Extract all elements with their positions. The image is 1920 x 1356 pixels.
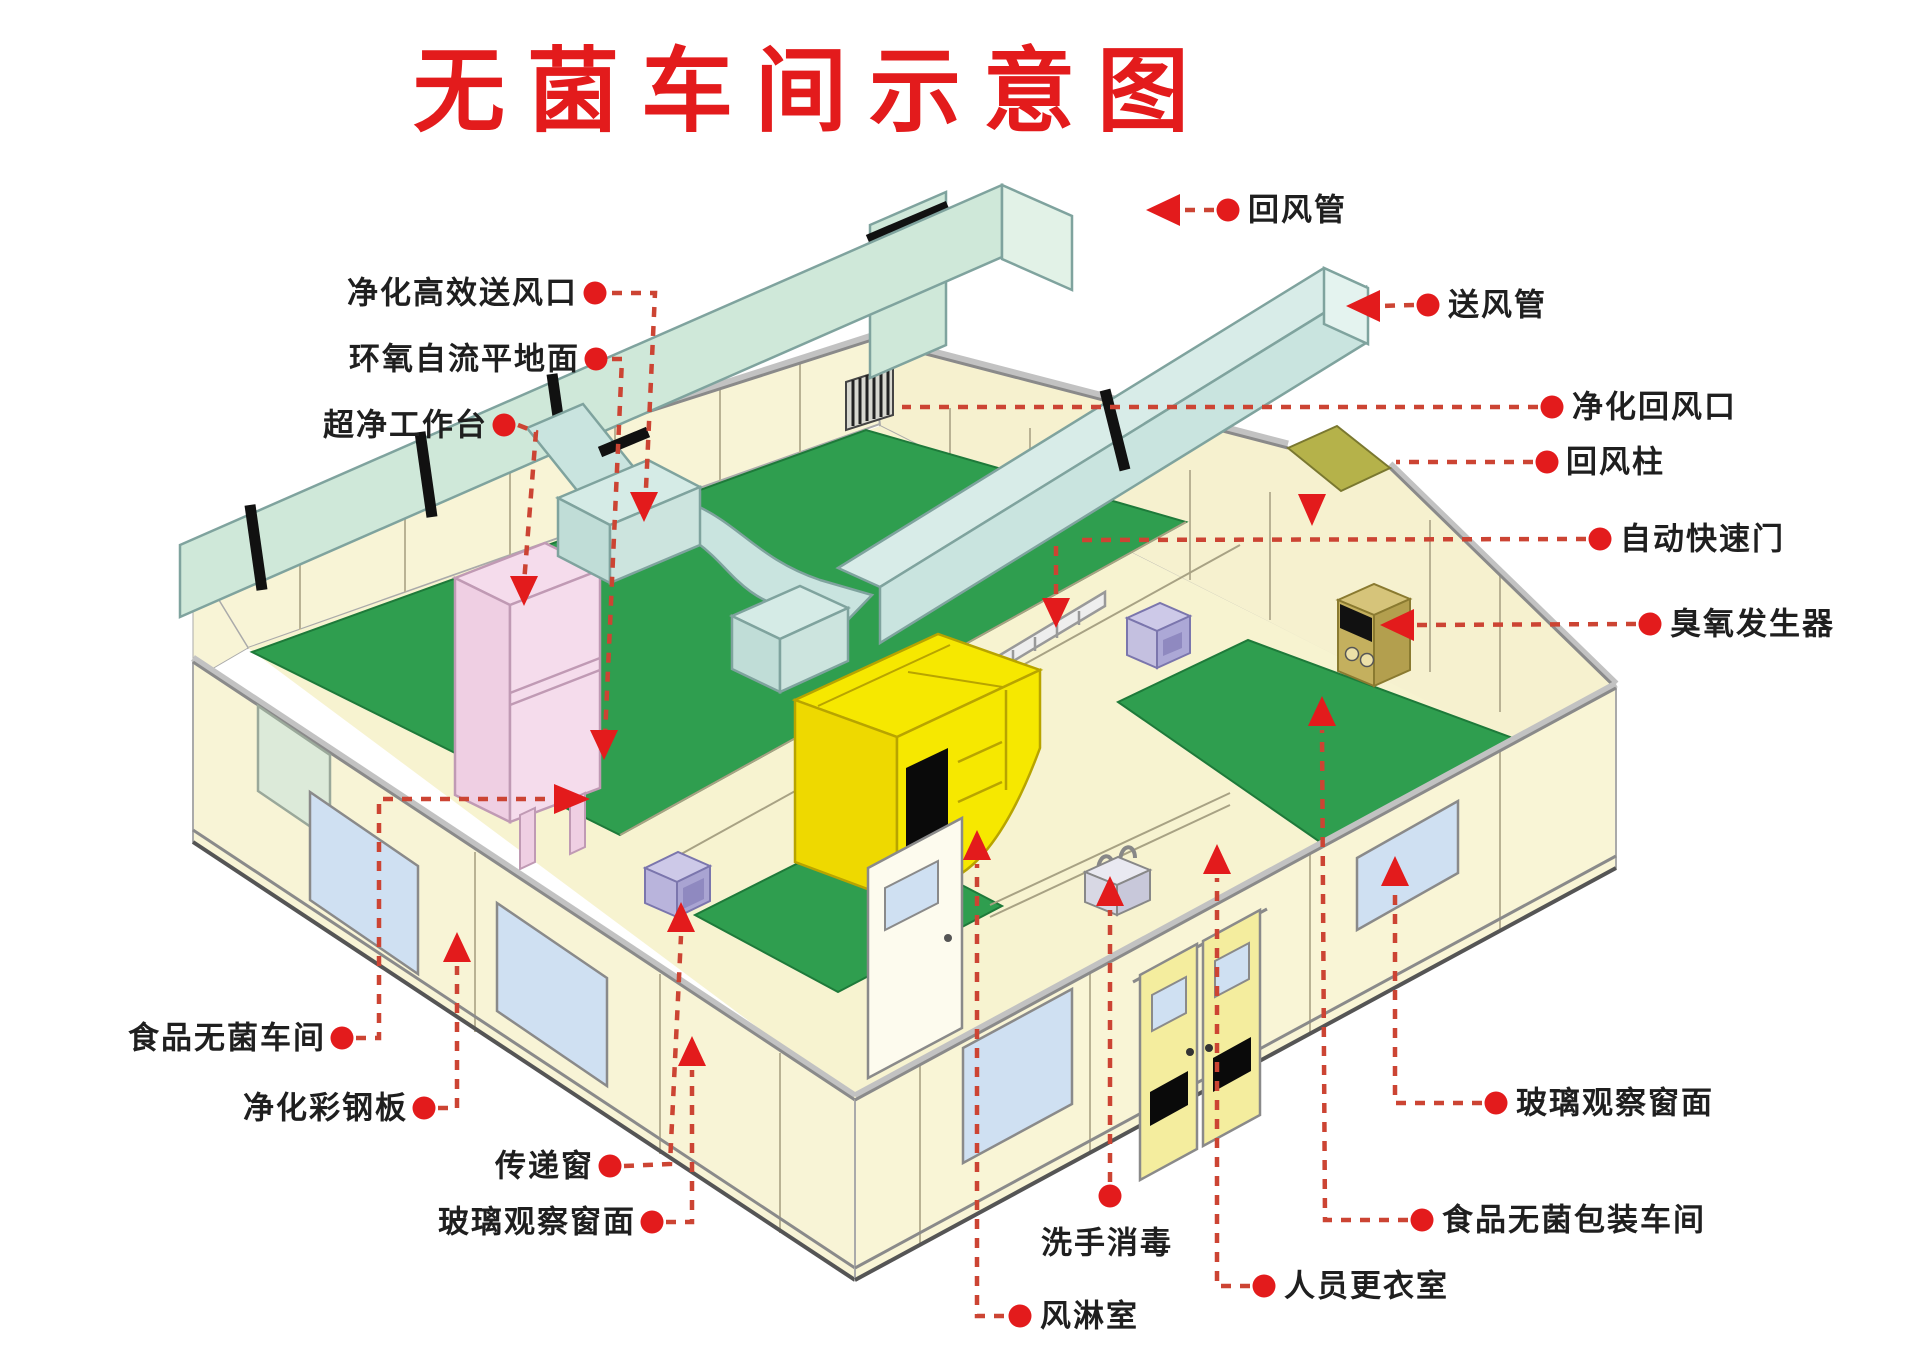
svg-text:玻璃观察窗面: 玻璃观察窗面 <box>1516 1086 1714 1121</box>
svg-text:净化回风口: 净化回风口 <box>1572 390 1737 425</box>
svg-text:传递窗: 传递窗 <box>494 1149 594 1184</box>
svg-text:自动快速门: 自动快速门 <box>1620 522 1785 557</box>
label-supply-duct: 送风管 <box>1346 288 1547 323</box>
svg-text:净化彩钢板: 净化彩钢板 <box>243 1091 408 1126</box>
svg-text:食品无菌包装车间: 食品无菌包装车间 <box>1442 1203 1706 1238</box>
svg-text:玻璃观察窗面: 玻璃观察窗面 <box>438 1205 636 1240</box>
svg-text:臭氧发生器: 臭氧发生器 <box>1670 607 1835 642</box>
diagram-canvas: 无菌车间示意图 净化高效送风口 环氧自流平地面 超净工作台 食品无菌车间 净化彩… <box>0 0 1920 1356</box>
svg-text:洗手消毒: 洗手消毒 <box>1041 1226 1173 1261</box>
label-return-air-column: 回风柱 <box>1396 445 1665 480</box>
svg-text:回风管: 回风管 <box>1248 193 1347 228</box>
page-title: 无菌车间示意图 <box>413 41 1211 143</box>
door-knob <box>944 934 952 942</box>
svg-text:人员更衣室: 人员更衣室 <box>1284 1269 1449 1304</box>
svg-text:食品无菌车间: 食品无菌车间 <box>128 1021 326 1056</box>
svg-text:净化高效送风口: 净化高效送风口 <box>347 276 578 311</box>
svg-text:回风柱: 回风柱 <box>1566 445 1665 480</box>
svg-text:风淋室: 风淋室 <box>1040 1299 1139 1334</box>
return-duct-end-cap <box>1002 185 1072 290</box>
svg-text:环氧自流平地面: 环氧自流平地面 <box>349 342 580 377</box>
ozone-generator-cabinet <box>1338 584 1410 686</box>
label-return-duct: 回风管 <box>1146 193 1347 228</box>
cleanroom-diagram: 无菌车间示意图 净化高效送风口 环氧自流平地面 超净工作台 食品无菌车间 净化彩… <box>0 0 1920 1356</box>
svg-text:超净工作台: 超净工作台 <box>323 408 488 443</box>
equipment-box <box>1127 603 1190 668</box>
svg-text:送风管: 送风管 <box>1448 288 1547 323</box>
